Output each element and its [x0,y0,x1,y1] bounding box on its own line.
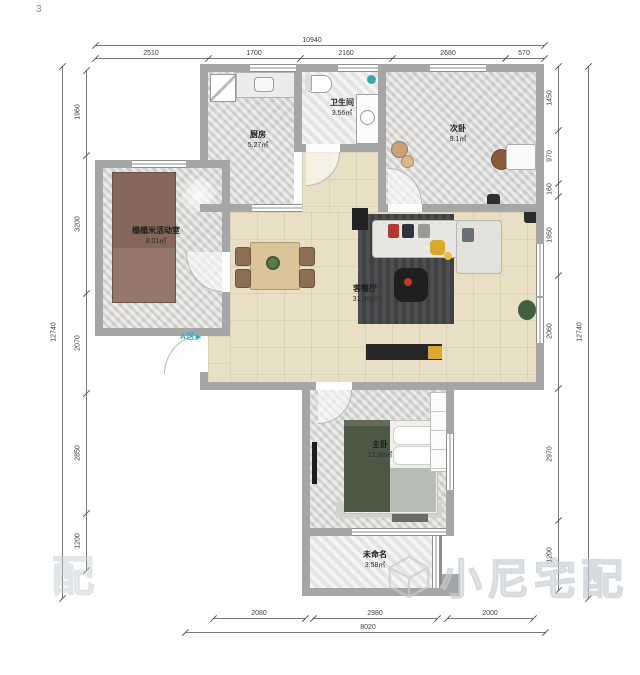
door-arc-bath [306,152,340,186]
room-name: 未命名 [363,550,387,561]
wall-living-bottom-left [200,382,310,390]
dresser [506,144,536,170]
door-gap-bedroom [388,204,422,212]
dimension-label: 2980 [367,610,383,617]
room-name: 厨房 [248,130,269,141]
door-arc-tatami [186,252,222,292]
dimension-label: 2060 [547,323,554,339]
tatami-platform-lower [112,248,176,303]
entry-arrow-icon: ▶ [196,334,202,341]
dimension-line [62,66,63,598]
dimension-label: 12740 [51,322,58,341]
room-area: 31.36㎡ [353,295,378,304]
window [536,244,544,296]
room-name: 次卧 [450,124,467,135]
dimension-label: 3200 [75,216,82,232]
room-label-tatami: 榻榻米活动室 8.01㎡ [132,226,180,246]
fridge [210,74,236,102]
stool [401,155,414,168]
room-name: 卫生间 [330,98,354,109]
window [132,160,186,168]
floor-lamp-icon [444,252,452,260]
dimension-label: 1700 [246,50,262,57]
floor-plant [518,300,536,320]
dimension-label: 970 [547,150,554,162]
coffee-table [394,268,428,302]
bed-duvet-green [344,420,390,512]
watermark-text: 小尼宅配 [440,546,628,607]
bed-pillow [393,426,434,445]
dining-chair [299,269,315,288]
room-label-living: 客餐厅 31.36㎡ [353,284,378,304]
bed-bench [392,514,428,522]
room-name: 客餐厅 [353,284,378,295]
wall-kitchen-left [200,64,208,164]
room-area: 3.58㎡ [363,561,387,570]
kitchen-sink [254,77,274,92]
table-plant-icon [266,256,280,270]
dimension-label: 2000 [482,610,498,617]
dimension-label: 570 [518,50,530,57]
room-label-second-bedroom: 次卧 9.1㎡ [450,124,467,144]
dimension-label: 2850 [75,445,82,461]
washer-drum-icon [360,110,375,125]
dimension-line [313,618,437,619]
cabinet-accent-yellow [428,346,442,359]
watermark-partial-text: 配 [52,548,99,598]
sliding-door [252,204,302,212]
tv-sidewall [352,208,368,230]
dimension-label: 2080 [251,610,267,617]
bed-blanket [390,468,436,512]
entry-zone-text: A区 [180,332,196,341]
dimension-line [213,618,305,619]
door-arc-bedroom [388,168,422,204]
dimension-line [447,618,533,619]
dimension-line [86,70,87,570]
dimension-line [95,45,544,46]
window [250,64,296,72]
entry-zone-label: A区▶ [180,331,202,342]
wall-tatami-left [95,160,103,336]
dimension-label: 2970 [547,446,554,462]
dimension-line [588,66,589,598]
door-gap-bath [306,144,340,152]
dimension-label: 12740 [577,322,584,341]
dimension-label: 1450 [547,90,554,106]
dimension-label: 2070 [75,335,82,351]
cushion-navy [402,224,414,238]
room-area: 9.1㎡ [450,135,467,144]
dimension-label: 1950 [547,227,554,243]
dimension-label: 10940 [302,37,321,44]
dimension-line [558,66,559,590]
toilet-tank [305,75,312,91]
dimension-label: 2510 [143,50,159,57]
watermark-logo-icon [386,554,432,600]
dimension-label: 8020 [360,624,376,631]
dimension-label: 160 [547,183,554,195]
dining-chair [235,269,251,288]
dining-chair [235,247,251,266]
room-label-master: 主卧 12.98㎡ [368,440,393,460]
window [430,64,486,72]
door-arc-master [318,390,352,424]
wall-bath-bedroom [378,64,386,212]
room-label-kitchen: 厨房 5.27㎡ [248,130,269,150]
wall-master-left [302,382,310,596]
dimension-label: 1200 [75,533,82,549]
dimension-line [95,58,544,59]
door-gap-tatami [222,252,230,292]
window [446,434,454,490]
door-gap-master [316,382,352,390]
entry-floor-strip [208,336,230,382]
room-label-bathroom: 卫生间 3.56㎡ [330,98,354,118]
dining-chair [299,247,315,266]
room-name: 榻榻米活动室 [132,226,180,237]
room-area: 5.27㎡ [248,141,269,150]
wall-living-bottom-right [446,382,544,390]
wall-tatami-bottom [95,328,230,336]
floor-plan: 3 [0,0,640,675]
wall-tatami-right [222,160,230,336]
dimension-line [185,632,545,633]
room-area: 12.98㎡ [368,451,393,460]
dimension-label: 1960 [75,104,82,120]
ottoman-yellow [430,240,445,255]
room-name: 主卧 [368,440,393,451]
coffee-table-bowl [404,278,412,286]
watermark: 小尼宅配 [386,546,628,607]
cushion-gray [418,224,430,238]
bed-pillow [393,446,434,465]
cushion-slate [462,228,474,242]
bathroom-plant-icon [367,75,376,84]
dimension-label: 2680 [440,50,456,57]
room-area: 8.01㎡ [132,237,180,246]
window [338,64,378,72]
wall-kitchen-bath [294,64,302,152]
watermark-partial: 配 [52,548,104,598]
room-area: 3.56㎡ [330,109,354,118]
wall-tv [312,442,317,484]
sliding-door [352,528,446,536]
page-corner-number: 3 [36,4,42,15]
dimension-label: 2160 [338,50,354,57]
window [536,298,544,343]
cushion-red [388,224,399,238]
room-label-unnamed: 未命名 3.58㎡ [363,550,387,570]
